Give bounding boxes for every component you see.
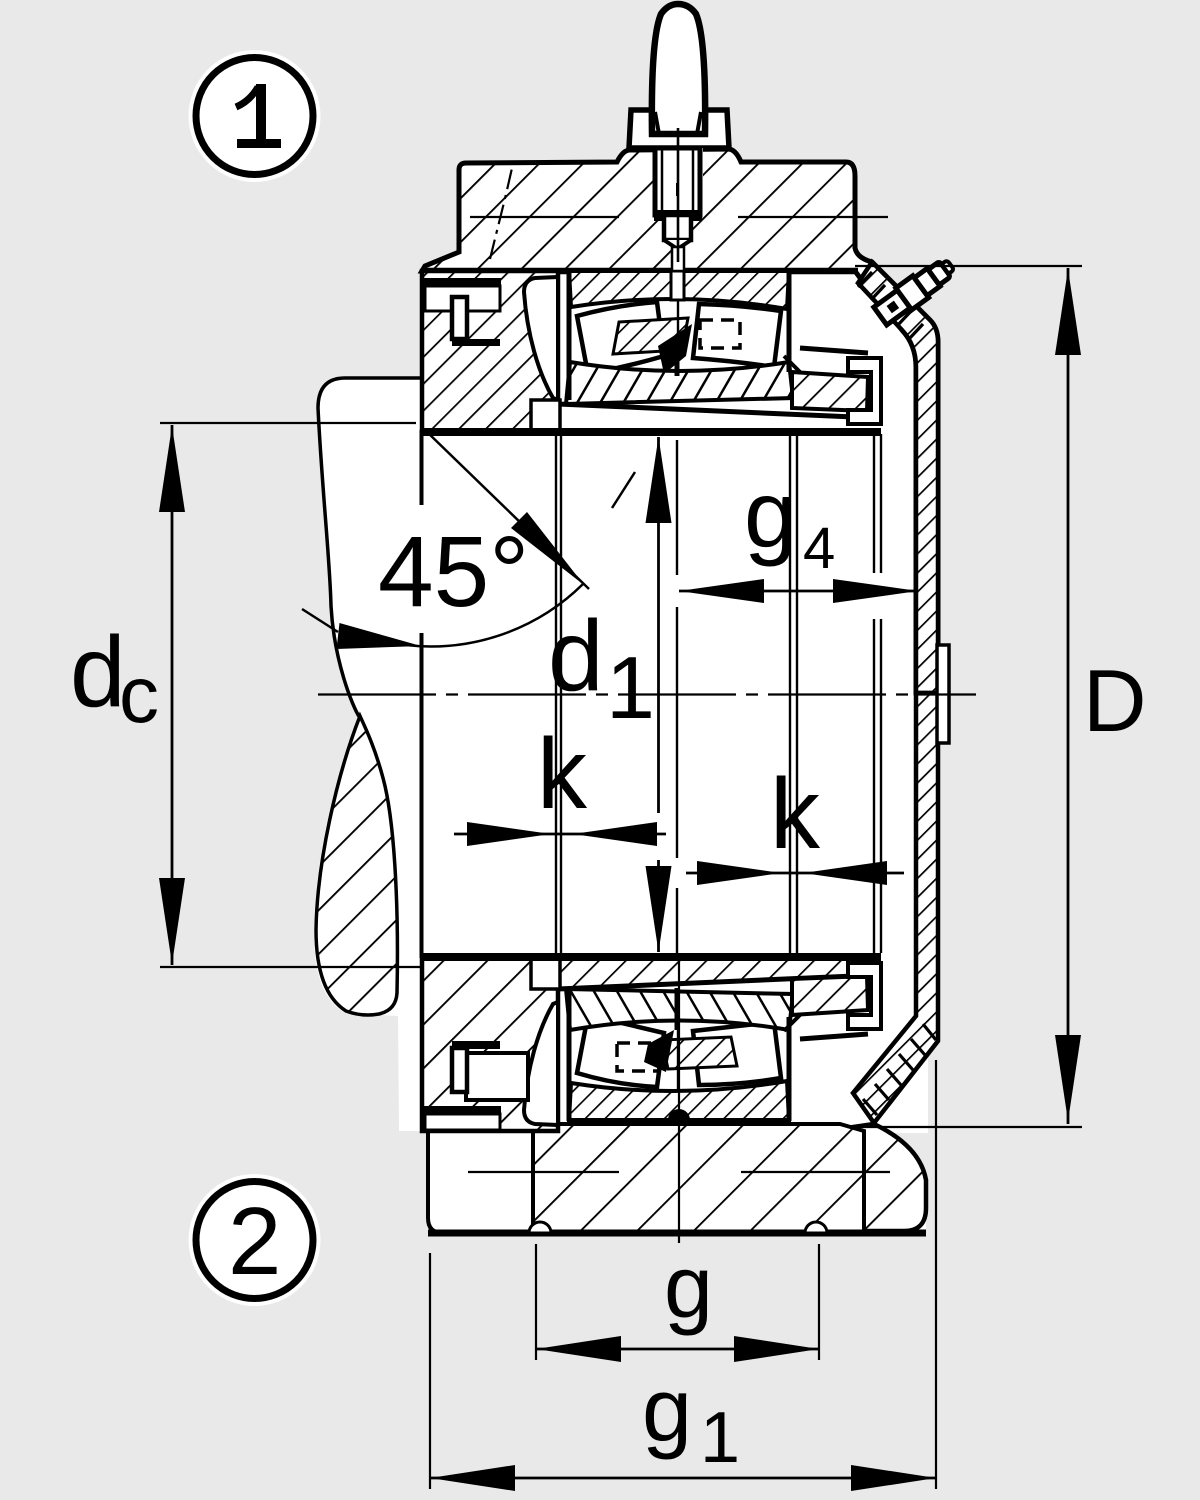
- svg-text:d: d: [548, 600, 604, 712]
- svg-text:k: k: [770, 758, 821, 870]
- svg-text:d: d: [70, 616, 126, 728]
- svg-text:1: 1: [700, 1398, 740, 1478]
- svg-text:1: 1: [606, 638, 655, 737]
- svg-text:g: g: [642, 1361, 692, 1461]
- svg-text:c: c: [119, 650, 159, 739]
- svg-text:2: 2: [228, 1188, 281, 1295]
- svg-text:g: g: [664, 1237, 713, 1336]
- svg-text:k: k: [537, 718, 588, 830]
- svg-text:g: g: [744, 462, 797, 568]
- svg-text:D: D: [1083, 651, 1147, 750]
- svg-text:45°: 45°: [378, 516, 529, 628]
- svg-text:4: 4: [803, 516, 835, 581]
